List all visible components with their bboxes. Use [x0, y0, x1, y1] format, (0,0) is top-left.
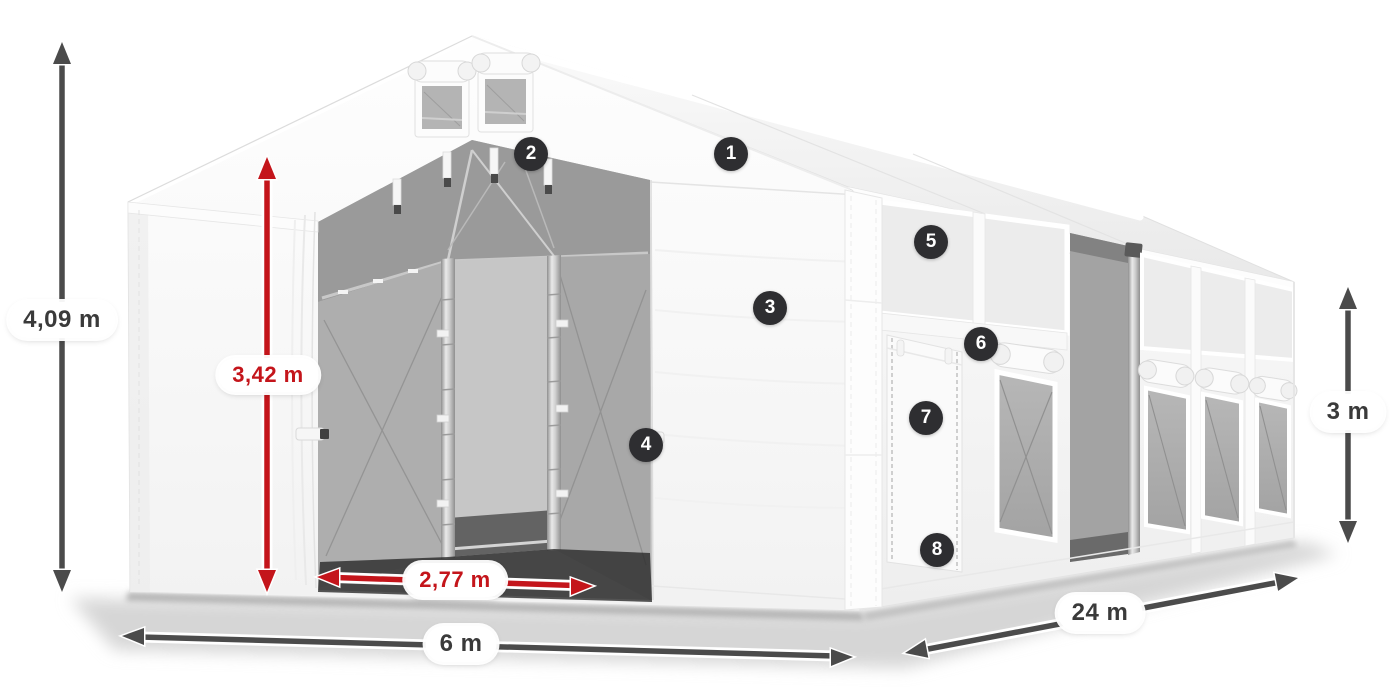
dimension-label-entrance-width: 2,77 m	[405, 563, 505, 597]
side-door-panel	[887, 335, 962, 572]
callout-badge-1: 1	[714, 137, 748, 171]
front-right-corner-column	[845, 190, 882, 610]
callout-badge-8: 8	[920, 533, 954, 567]
dimension-label-total-height: 4,09 m	[9, 302, 115, 338]
callout-badge-6: 6	[964, 327, 998, 361]
tent-dimension-diagram: 4,09 m 3,42 m 2,77 m 6 m 24 m 3 m 1 2 3 …	[0, 0, 1400, 700]
dimension-label-side-wall-height: 3 m	[1313, 394, 1384, 430]
dimension-label-side-length: 24 m	[1058, 595, 1143, 631]
callout-badge-3: 3	[753, 291, 787, 325]
callout-badge-4: 4	[629, 428, 663, 462]
tent-illustration	[0, 0, 1400, 700]
callout-badge-7: 7	[909, 401, 943, 435]
dimension-label-front-width: 6 m	[426, 626, 497, 662]
callout-badge-5: 5	[914, 225, 948, 259]
entrance-opening	[318, 140, 652, 602]
vent-roll-2	[472, 53, 540, 74]
vent-roll-1	[408, 61, 476, 82]
side-open-bay	[1070, 233, 1143, 562]
dimension-label-entrance-height: 3,42 m	[218, 358, 318, 392]
callout-badge-2: 2	[514, 137, 548, 171]
